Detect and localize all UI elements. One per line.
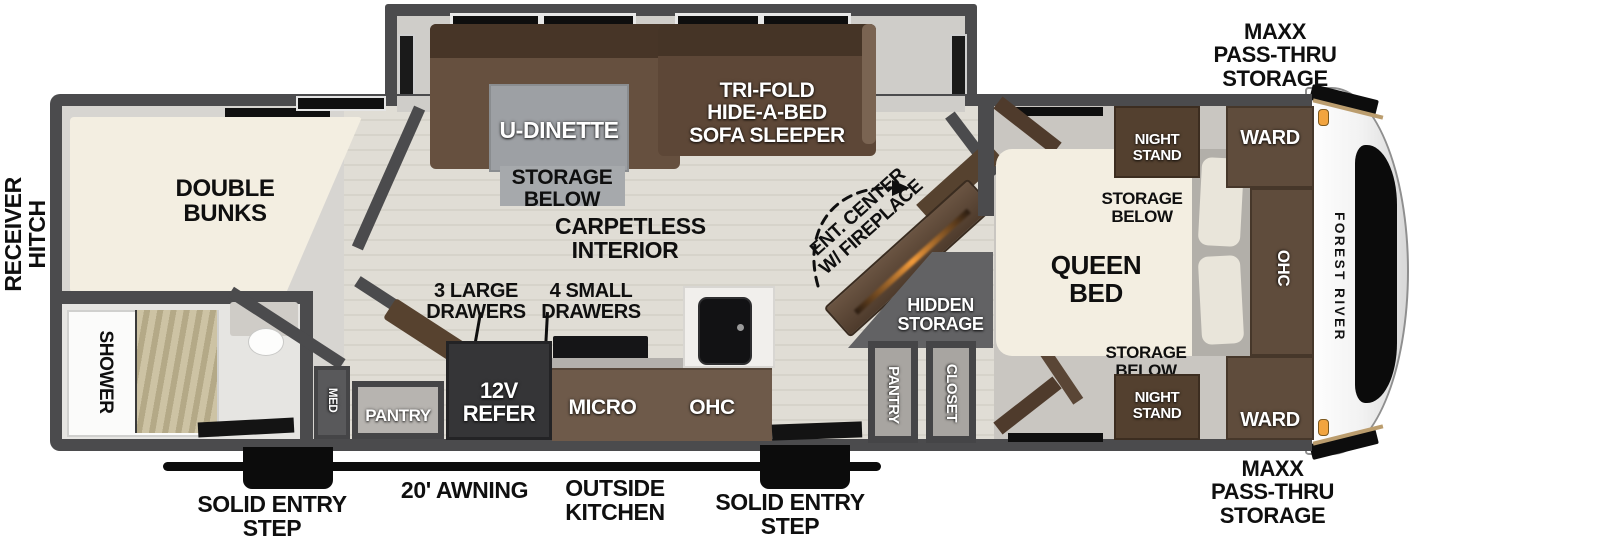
closet-label: CLOSET — [943, 353, 959, 433]
maxx-storage-bottom-label: MAXX PASS-THRU STORAGE — [1160, 457, 1385, 527]
double-bunks-label: DOUBLE BUNKS — [130, 176, 320, 227]
windshield-decal — [1355, 145, 1397, 403]
brand-logo-text: FOREST RIVER — [1332, 212, 1347, 342]
shower-curtain — [135, 310, 217, 433]
nightstand-top-label: NIGHT STAND — [1118, 132, 1196, 164]
slideout-side-window-right — [950, 34, 967, 96]
slideout-side-window-left — [398, 34, 415, 96]
arrow-icon — [892, 180, 910, 196]
clearance-light-bottom — [1318, 419, 1329, 436]
bedroom-window-bottom — [1008, 433, 1103, 442]
ward-top-label: WARD — [1230, 128, 1310, 149]
micro-label: MICRO — [560, 397, 645, 419]
bedroom-divider-wall — [978, 106, 994, 216]
sofa-arm-right — [862, 24, 876, 144]
med-label: MED — [326, 380, 338, 420]
pantry-main-label: PANTRY — [885, 355, 901, 435]
sink-faucet — [737, 324, 744, 331]
carpetless-label: CARPETLESS INTERIOR — [555, 214, 695, 263]
ohc-bedroom-label: OHC — [1274, 238, 1292, 298]
ohc-kitchen-label: OHC — [672, 397, 752, 419]
u-dinette-label: U-DINETTE — [494, 118, 624, 142]
entry-step-right — [760, 445, 850, 489]
receiver-hitch-label: RECEIVER HITCH — [1, 152, 50, 317]
queen-bed-label: QUEEN BED — [1026, 252, 1166, 307]
storage-below-top-label: STORAGE BELOW — [1082, 190, 1202, 226]
large-drawers-label: 3 LARGE DRAWERS — [420, 281, 532, 323]
entry-door-mat — [772, 421, 863, 440]
sofa-back — [658, 24, 876, 56]
refer-label: 12V REFER — [452, 379, 546, 426]
door-swing-arc — [800, 168, 915, 293]
hidden-storage-label: HIDDEN STORAGE — [878, 296, 1003, 334]
entry-step-left — [243, 447, 333, 489]
sofa-label: TRI-FOLD HIDE-A-BED SOFA SLEEPER — [672, 80, 862, 147]
pillow-bottom — [1198, 255, 1245, 345]
dinette-bench-back — [430, 24, 680, 58]
entry-step-left-label: SOLID ENTRY STEP — [182, 492, 362, 541]
floorplan-diagram: FOREST RIVER DOUBLE BUNKS SHOWER MED PAN… — [0, 0, 1600, 541]
clearance-light-top — [1318, 109, 1329, 126]
dinette-storage-label: STORAGE BELOW — [502, 167, 622, 212]
brand-logo: FOREST RIVER — [1328, 162, 1346, 392]
pantry-bath-label: PANTRY — [354, 407, 442, 425]
small-drawers-label: 4 SMALL DRAWERS — [535, 281, 647, 323]
outside-kitchen-label: OUTSIDE KITCHEN — [545, 476, 685, 525]
kitchen-sink — [698, 297, 752, 365]
bath-right-wall — [300, 291, 313, 439]
entry-step-right-label: SOLID ENTRY STEP — [700, 490, 880, 539]
ward-bottom-label: WARD — [1230, 410, 1310, 431]
awning-label: 20' AWNING — [382, 478, 547, 502]
toilet — [248, 328, 284, 356]
main-window-left — [296, 96, 386, 111]
nightstand-bottom-label: NIGHT STAND — [1118, 390, 1196, 422]
shower-label: SHOWER — [95, 312, 115, 432]
maxx-storage-top-label: MAXX PASS-THRU STORAGE — [1165, 20, 1385, 90]
